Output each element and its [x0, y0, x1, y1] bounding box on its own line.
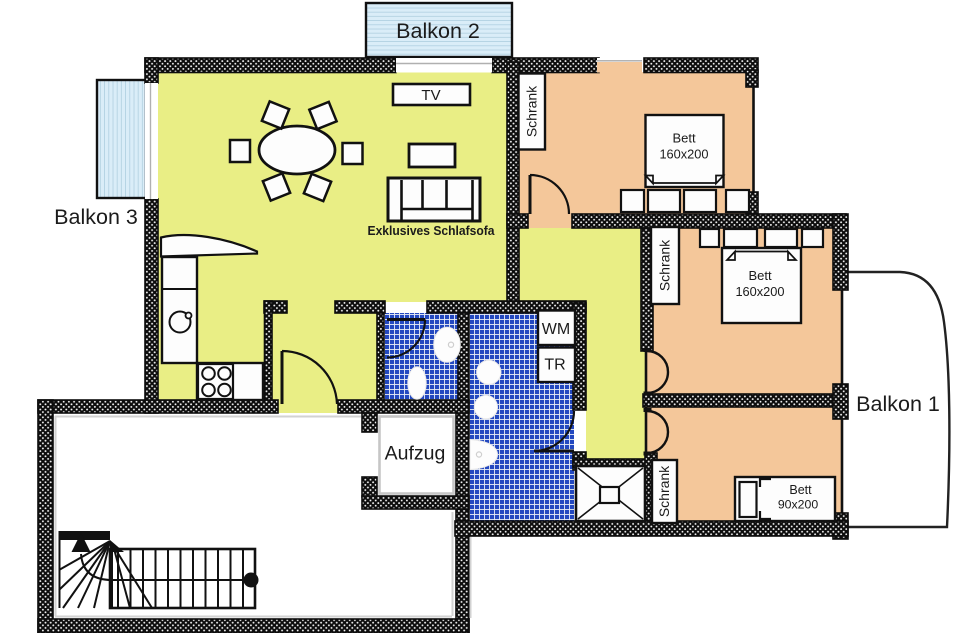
svg-text:TV: TV — [421, 87, 440, 104]
svg-text:Aufzug: Aufzug — [385, 443, 446, 465]
svg-text:Exklusives Schlafsofa: Exklusives Schlafsofa — [368, 223, 496, 238]
svg-text:TR: TR — [544, 357, 565, 374]
svg-text:Balkon 2: Balkon 2 — [396, 19, 480, 43]
svg-text:90x200: 90x200 — [778, 498, 819, 512]
svg-text:Schrank: Schrank — [524, 85, 540, 137]
svg-text:Balkon 1: Balkon 1 — [856, 392, 940, 416]
svg-text:Schrank: Schrank — [657, 239, 673, 291]
svg-text:WM: WM — [542, 321, 570, 338]
svg-text:Schrank: Schrank — [656, 465, 672, 517]
svg-text:Bett: Bett — [748, 268, 772, 283]
svg-text:Balkon 3: Balkon 3 — [54, 205, 138, 229]
svg-text:160x200: 160x200 — [659, 147, 708, 162]
svg-text:Bett: Bett — [672, 131, 696, 146]
svg-text:160x200: 160x200 — [735, 284, 784, 299]
svg-text:Bett: Bett — [789, 483, 812, 497]
